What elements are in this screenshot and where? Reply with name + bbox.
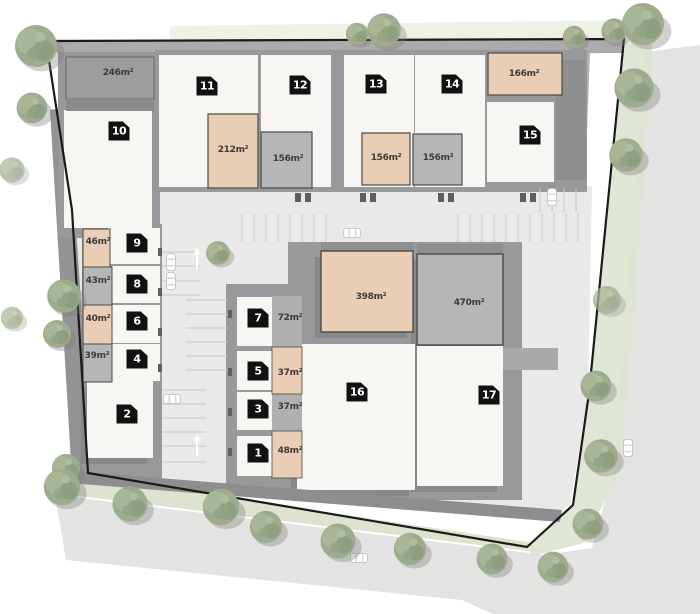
area-label-13: 156m² <box>371 153 402 163</box>
area-label-1: 48m² <box>278 446 303 456</box>
block-39 <box>83 344 112 382</box>
car-icon <box>548 189 557 206</box>
area-label-4: 39m² <box>85 351 110 361</box>
tree-icon <box>15 25 65 72</box>
area-label-14: 156m² <box>423 153 454 163</box>
area-label-9: 46m² <box>86 237 111 247</box>
tree-icon <box>0 157 29 185</box>
building-17 <box>417 346 503 486</box>
tree-icon <box>17 93 53 127</box>
block-246 <box>66 57 154 99</box>
area-label-8: 43m² <box>86 276 111 286</box>
car-icon <box>344 229 361 238</box>
area-label-15: 166m² <box>509 69 540 79</box>
area-label-16: 398m² <box>356 292 387 302</box>
car-icon <box>164 395 181 404</box>
car-icon <box>167 254 176 271</box>
car-icon <box>624 440 633 457</box>
car-icon <box>167 273 176 290</box>
area-label-11: 212m² <box>218 145 249 155</box>
building-16 <box>297 344 415 490</box>
area-label-10: 246m² <box>103 68 134 78</box>
area-label-5: 37m² <box>278 368 303 378</box>
site-plan-graphic <box>0 0 700 614</box>
block-43 <box>83 267 112 305</box>
tree-icon <box>1 307 27 332</box>
site-plan: 1 2 3 4 5 6 7 8 9 10 11 12 13 14 15 16 1… <box>0 0 700 614</box>
building-10 <box>64 110 152 228</box>
area-label-6: 40m² <box>86 314 111 324</box>
area-label-12: 156m² <box>273 154 304 164</box>
block-46 <box>83 229 110 267</box>
block-40 <box>83 305 112 344</box>
area-label-7: 72m² <box>278 313 303 323</box>
area-label-17: 470m² <box>454 298 485 308</box>
area-label-3: 37m² <box>278 402 303 412</box>
